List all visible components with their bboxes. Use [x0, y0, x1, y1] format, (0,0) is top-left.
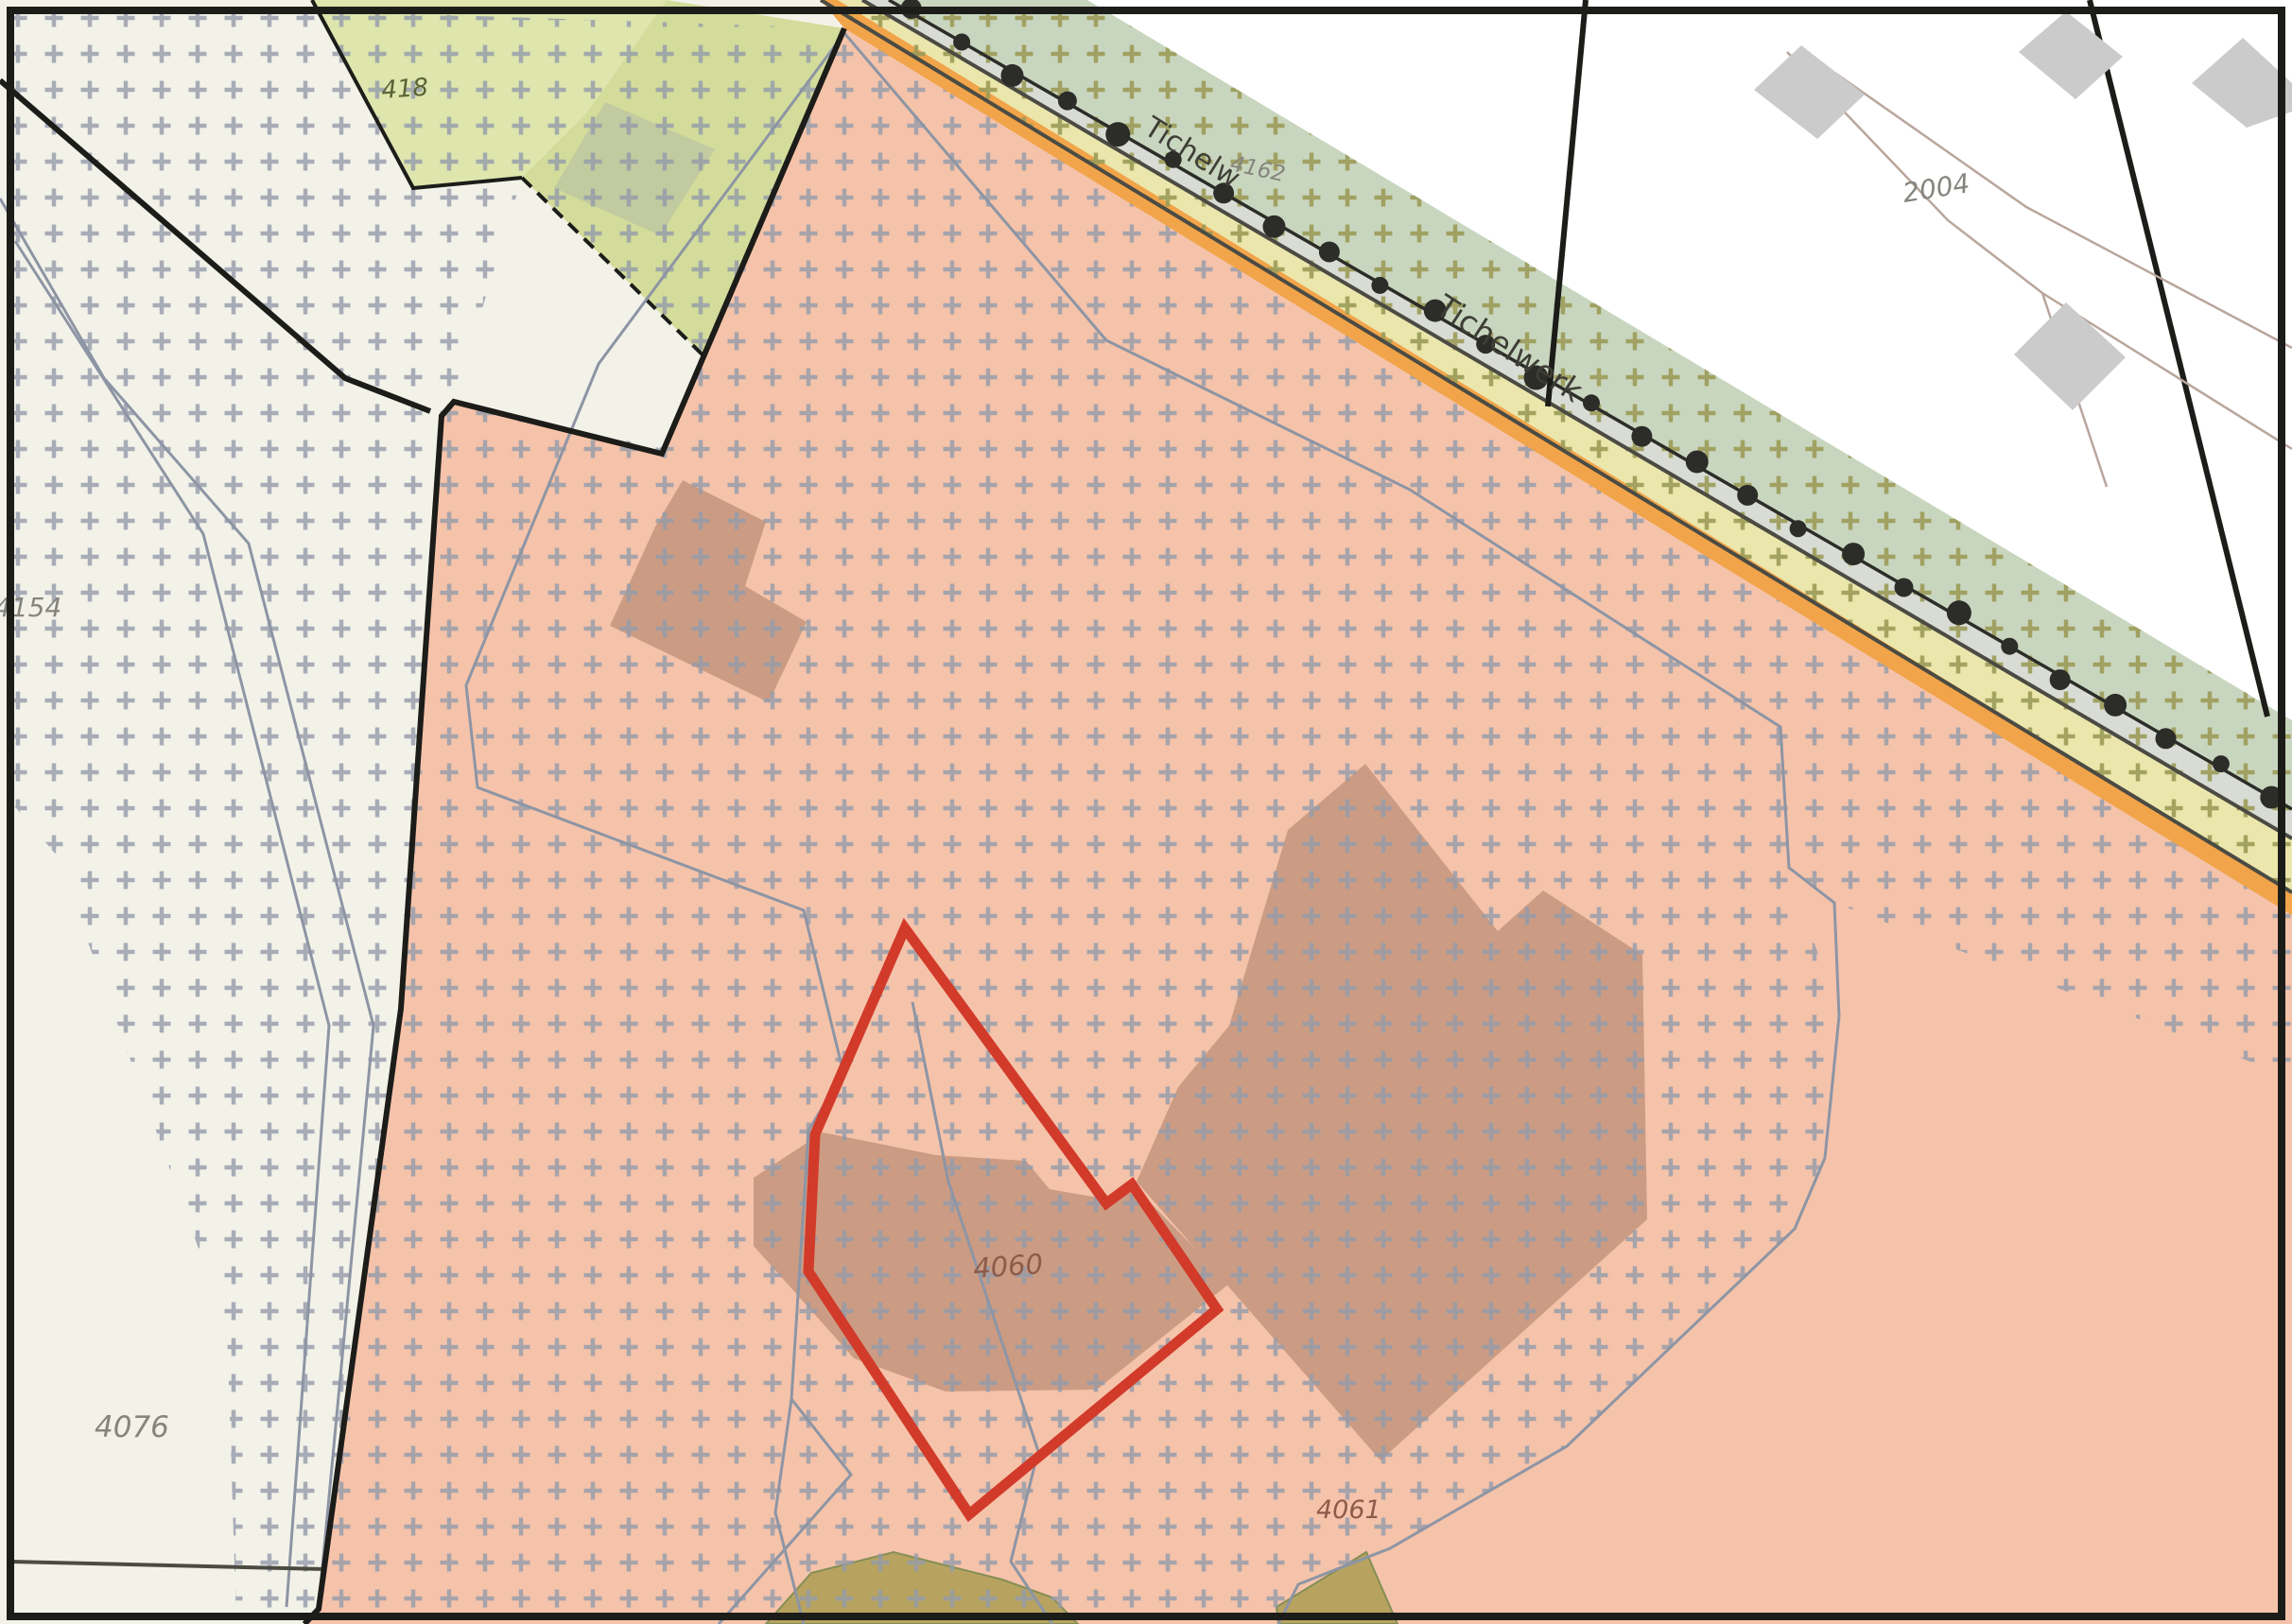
- tree-dot: [1001, 64, 1024, 87]
- parcel-label-4061: 4061: [1316, 1495, 1381, 1525]
- parcel-label-4076: 4076: [95, 1410, 169, 1444]
- tree-dot: [2001, 638, 2018, 655]
- tree-dot: [1790, 520, 1807, 537]
- tree-dot: [1842, 543, 1865, 565]
- tree-dot: [953, 34, 970, 51]
- tree-dot: [1319, 242, 1340, 263]
- parcel-label-418: 418: [380, 74, 429, 105]
- tree-dot: [2050, 669, 2071, 690]
- tree-dot: [1058, 92, 1077, 111]
- tree-dot: [1371, 277, 1388, 294]
- parcel-label-4060[interactable]: 4060: [972, 1248, 1044, 1285]
- tree-dot: [1105, 122, 1130, 147]
- tree-dot: [1631, 426, 1652, 447]
- map-viewport: 418 4162 Tichelw Tichelwerk 2004 4154 40…: [0, 0, 2292, 1624]
- tree-dot: [2156, 728, 2177, 749]
- tree-dot: [1686, 451, 1709, 474]
- tree-dot: [2104, 694, 2127, 717]
- tree-dot: [2213, 755, 2230, 772]
- tree-dot: [1263, 216, 1286, 238]
- tree-dot: [1895, 579, 1914, 597]
- tree-dot: [1947, 600, 1971, 625]
- tree-dot: [1583, 394, 1600, 411]
- tree-dot: [1737, 485, 1758, 506]
- cadastral-map: 418 4162 Tichelw Tichelwerk 2004 4154 40…: [0, 0, 2292, 1624]
